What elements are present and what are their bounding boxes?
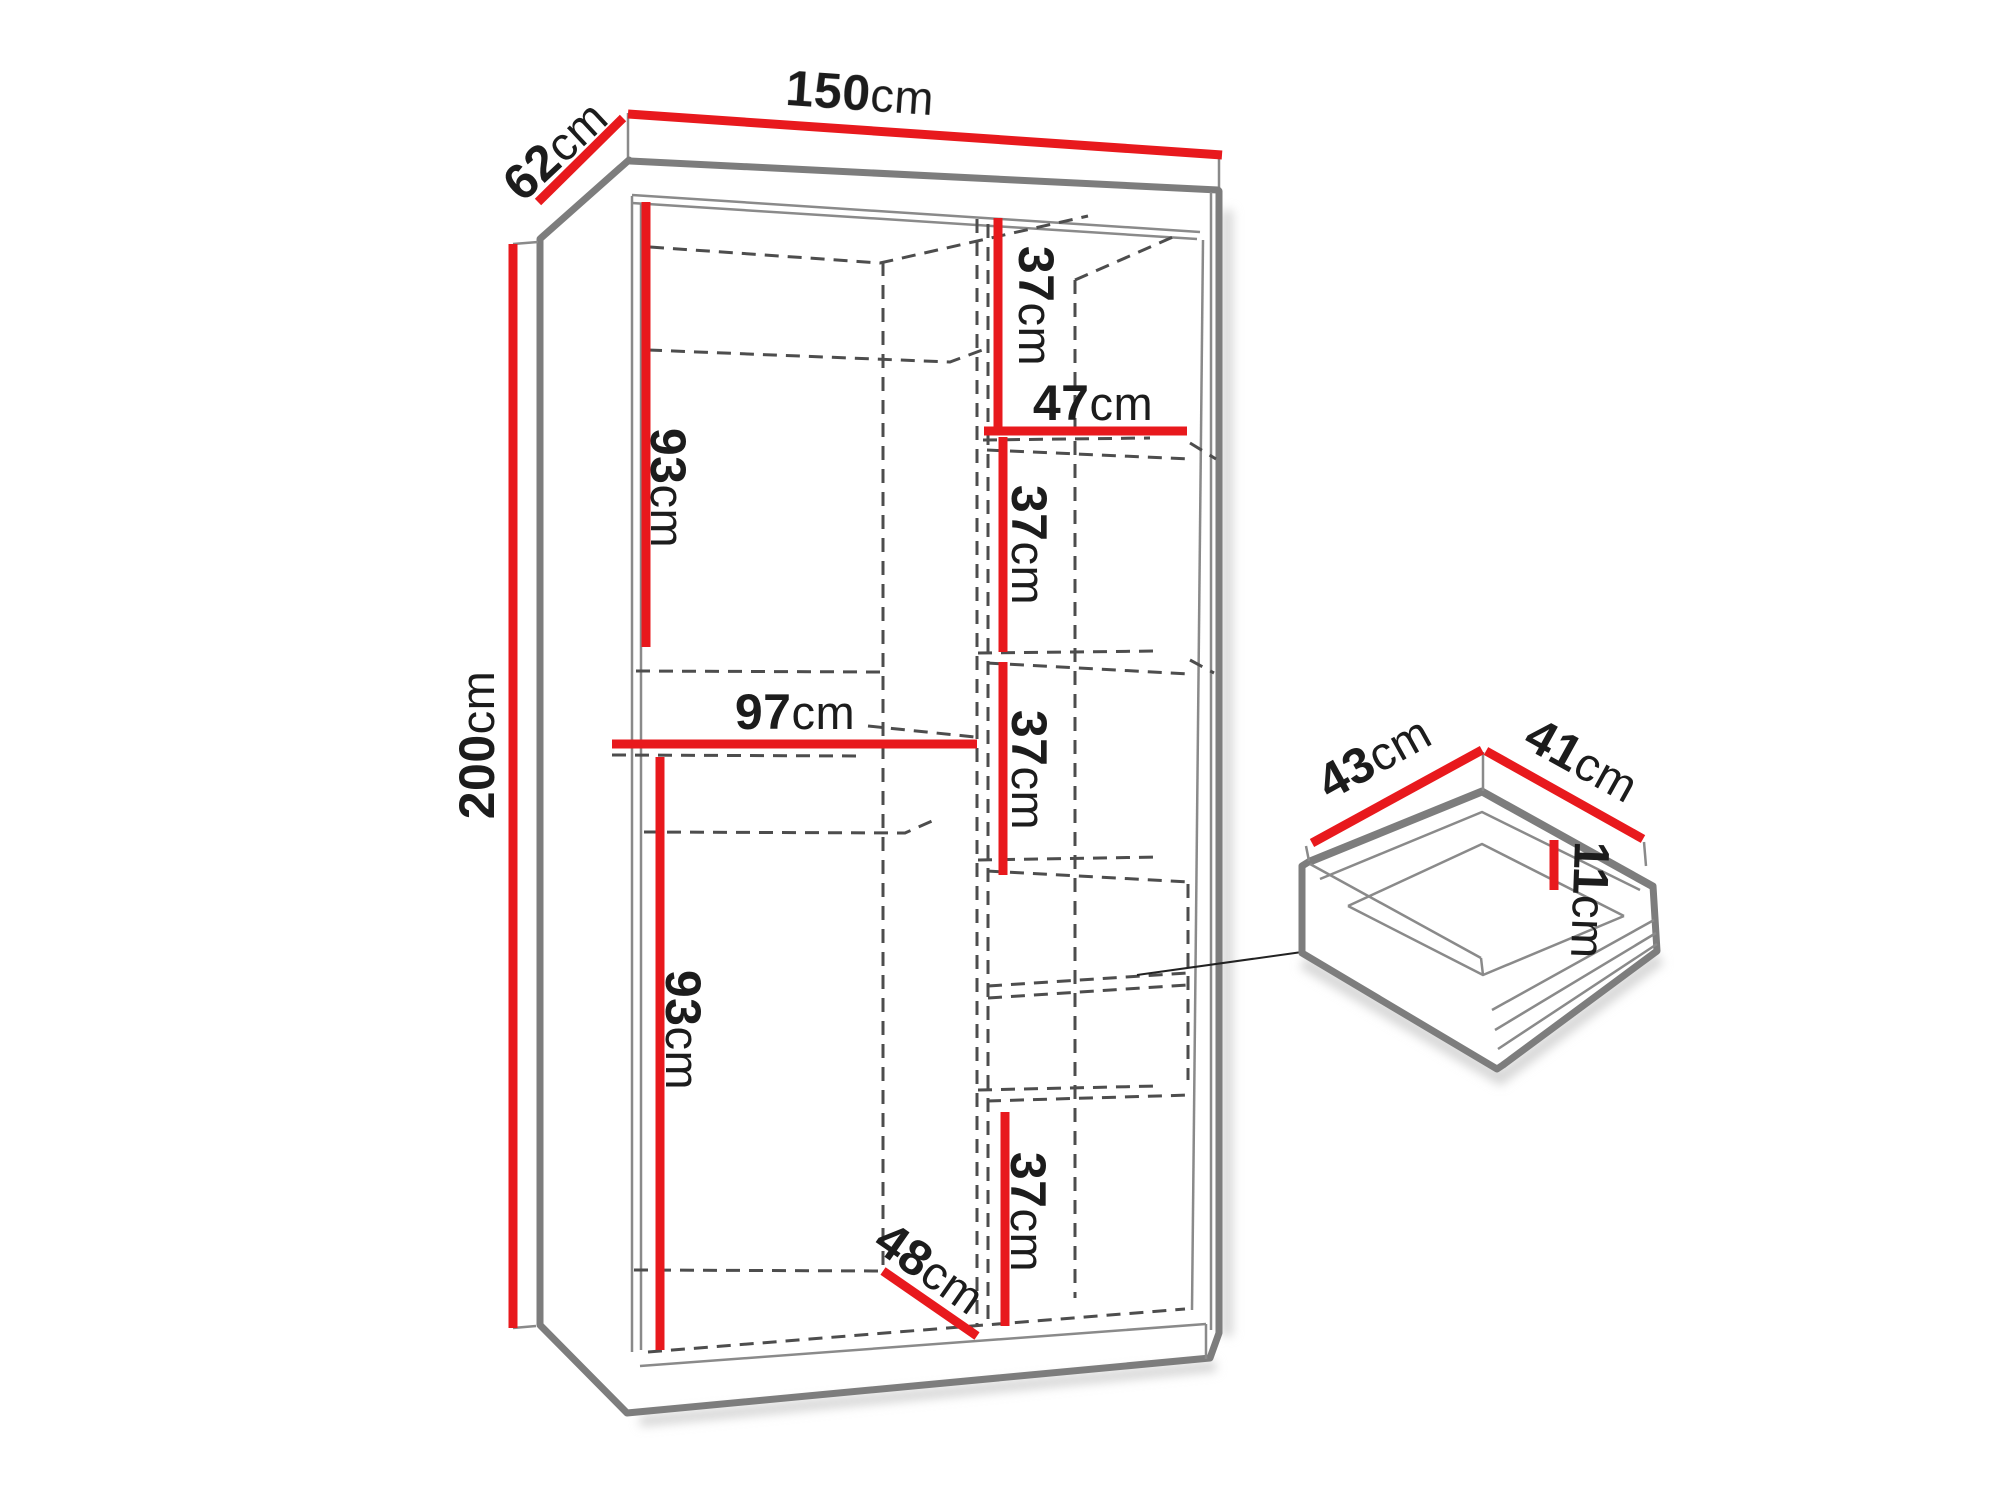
dim-label-lower-hanging: 93cm: [655, 970, 711, 1090]
vertical-divider: [977, 219, 988, 1326]
dim-label-drawer-height: 11cm: [1560, 840, 1620, 959]
dim-label-right-shelf: 47cm: [1033, 375, 1153, 431]
dim-label-right-gap-2: 37cm: [1001, 485, 1057, 605]
upper-hanging-rail: [648, 349, 985, 362]
interior-right-edge: [1192, 240, 1203, 1310]
drawer-compartment-bottom: [978, 1086, 1190, 1101]
dim-label-right-gap-3: 37cm: [1001, 710, 1057, 830]
dim-label-width: 150cm: [784, 60, 936, 126]
dimension-lines: [513, 114, 1222, 1350]
dim-label-drawer-depth: 43cm: [1308, 703, 1440, 810]
dim-label-depth: 62cm: [492, 89, 618, 212]
interior-left-edge: [632, 196, 641, 1352]
dim-label-right-gap-4: 37cm: [1000, 1152, 1056, 1272]
dim-label-left-shelf: 97cm: [735, 684, 855, 740]
cabinet-bottom-shadow: [640, 1366, 1216, 1421]
lower-hanging-rail: [644, 821, 932, 833]
interior-top-edge: [632, 195, 1200, 239]
right-shelf-2-edges: [978, 651, 1214, 674]
wardrobe-outline: [513, 113, 1219, 1413]
wardrobe-dimensions-diagram: 150cm 62cm 200cm 93cm 97cm 93cm 48cm 37c…: [0, 0, 2000, 1500]
dim-label-height: 200cm: [449, 671, 505, 820]
dim-label-upper-hanging: 93cm: [640, 428, 696, 548]
drawer-compartment-top: [978, 857, 1190, 882]
diagram-page: 150cm 62cm 200cm 93cm 97cm 93cm 48cm 37c…: [0, 0, 2000, 1500]
dim-label-right-gap-1: 37cm: [1008, 246, 1064, 366]
dim-label-drawer-width: 41cm: [1516, 706, 1648, 813]
right-shelf-1-edges: [983, 438, 1216, 459]
top-panel-front-edge: [630, 161, 1218, 190]
floor-back-edge: [634, 1270, 883, 1271]
drawer-compartment-box: [988, 884, 1188, 1080]
dimension-labels: 150cm 62cm 200cm 93cm 97cm 93cm 48cm 37c…: [449, 60, 1648, 1326]
